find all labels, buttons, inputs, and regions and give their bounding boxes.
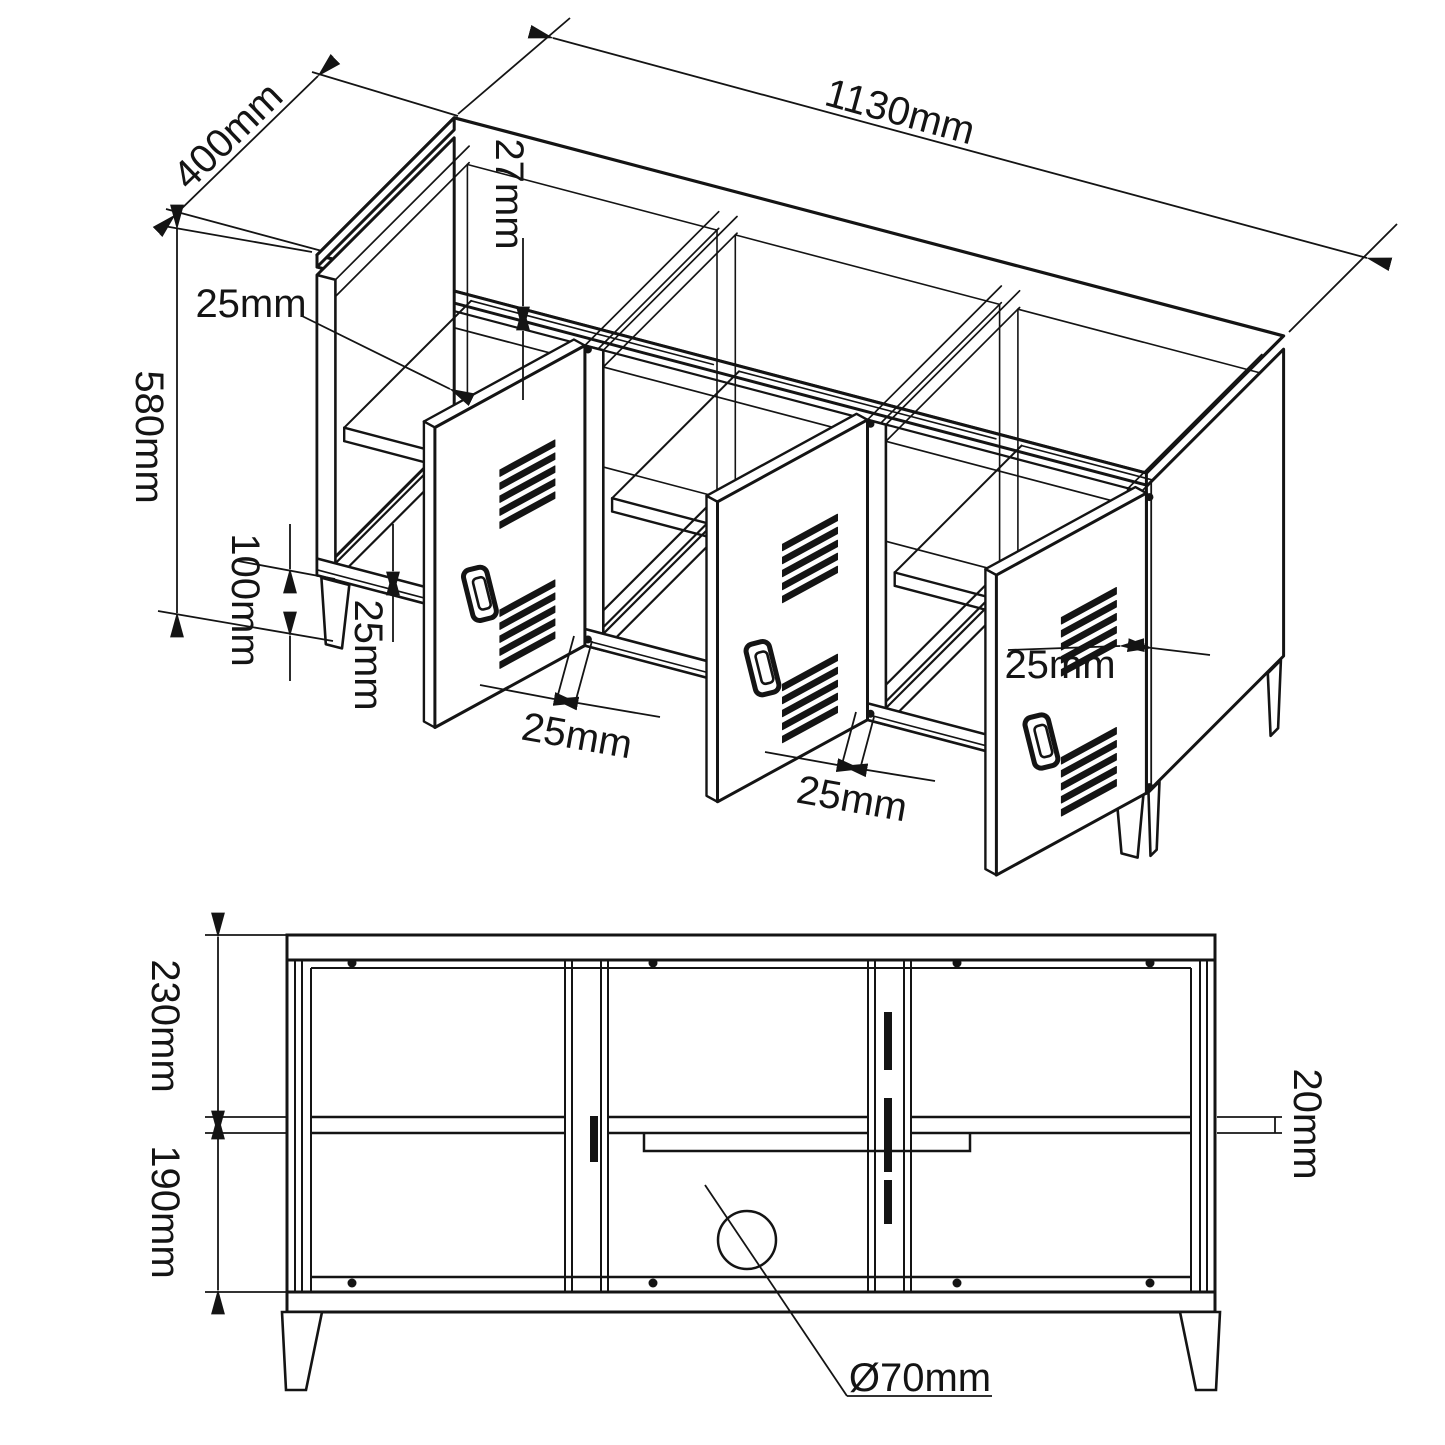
- dim-label-width: 1130mm: [821, 71, 980, 153]
- isometric-cabinet-drawing: [317, 118, 1284, 875]
- hinge-mark: [884, 1012, 892, 1070]
- hinge-mark: [884, 1180, 892, 1224]
- front-view-drawing: [282, 935, 1220, 1390]
- dim-label-door1-rail: 25mm: [518, 705, 635, 768]
- technical-drawing: 400mm 1130mm 27mm 25mm 580mm 100mm 25mm …: [0, 0, 1445, 1445]
- cable-hole: [718, 1211, 776, 1269]
- dim-label-cable-hole: Ø70mm: [849, 1356, 991, 1400]
- dim-line: [861, 769, 935, 781]
- dim-label-depth: 400mm: [165, 74, 292, 198]
- ext-line: [312, 72, 458, 116]
- dim-label-lower-section: 190mm: [143, 1145, 187, 1278]
- hinge-mark: [884, 1098, 892, 1172]
- dim-label-rail-thickness: 25mm: [346, 599, 390, 710]
- dim-line: [578, 703, 660, 717]
- ext-line: [1289, 224, 1397, 332]
- technical-drawing-page: 400mm 1130mm 27mm 25mm 580mm 100mm 25mm …: [0, 0, 1445, 1445]
- dim-label-door2-rail: 25mm: [793, 768, 910, 831]
- dim-label-height: 580mm: [127, 370, 171, 503]
- dim-label-top-thickness: 27mm: [487, 138, 531, 249]
- ext-line: [158, 225, 312, 252]
- front-leg: [282, 1312, 322, 1390]
- dim-label-shelf-gap: 20mm: [1285, 1068, 1329, 1179]
- ext-line: [458, 18, 570, 114]
- dim-label-shelf-thickness: 25mm: [195, 282, 306, 326]
- dim-label-door-thickness: 25mm: [1004, 643, 1115, 687]
- dim-label-leg-height: 100mm: [223, 533, 267, 666]
- door-handle-edge: [590, 1116, 598, 1162]
- ext-line: [859, 717, 874, 773]
- front-leg: [1180, 1312, 1220, 1390]
- dim-label-upper-section: 230mm: [143, 959, 187, 1092]
